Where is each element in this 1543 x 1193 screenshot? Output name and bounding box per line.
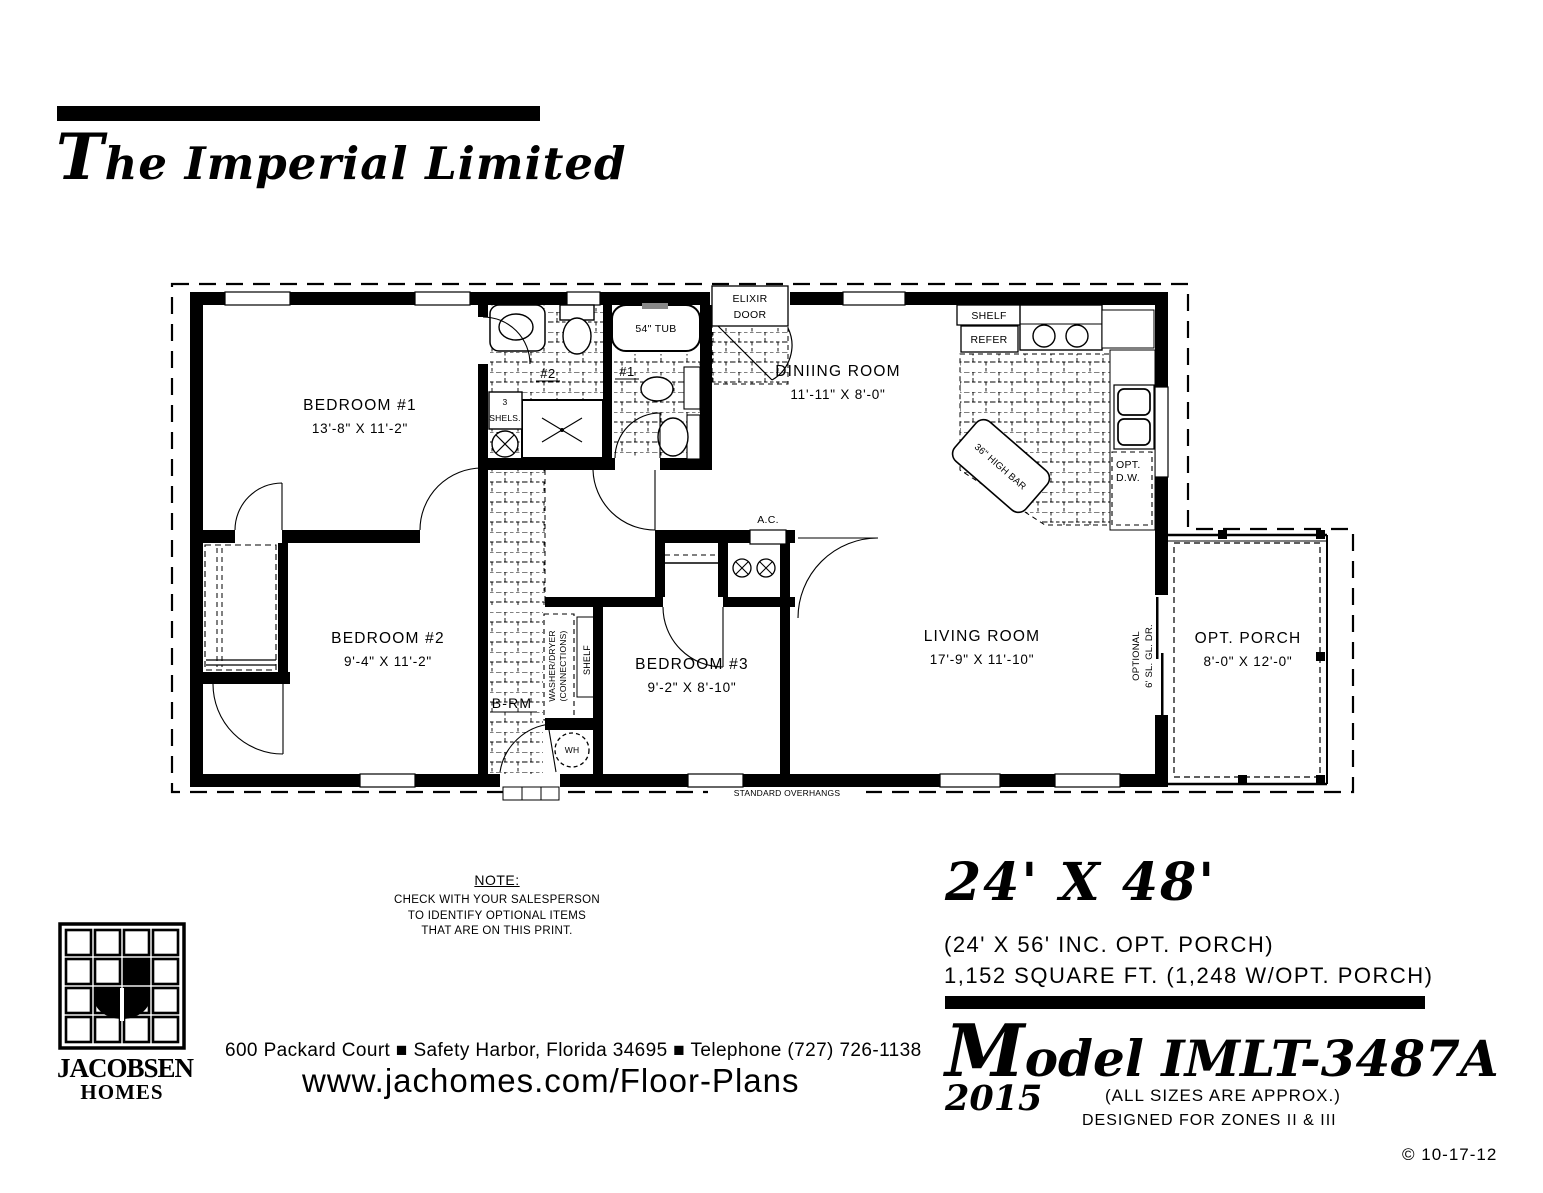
optional-label: OPTIONAL xyxy=(1131,631,1142,681)
jacobsen-logo-icon xyxy=(58,922,186,1050)
living-arch-arc xyxy=(798,538,878,618)
hall-door-arc xyxy=(420,468,482,530)
company-address: 600 Packard Court ■ Safety Harbor, Flori… xyxy=(225,1040,922,1062)
sliding-glass-door xyxy=(1156,597,1164,715)
elixir-label-2: DOOR xyxy=(734,309,767,321)
elixir-label-1: ELIXIR xyxy=(732,293,767,305)
opt-dw-label-2: D.W. xyxy=(1116,472,1140,484)
note-heading: NOTE: xyxy=(382,872,612,888)
bedroom2-name: BEDROOM #2 xyxy=(331,630,445,647)
bedroom1-closet xyxy=(205,483,282,670)
porch-name: OPT. PORCH xyxy=(1195,630,1302,647)
bath1-toilet xyxy=(658,418,688,456)
dining-dims: 11'-11" X 8'-0" xyxy=(790,387,885,402)
wh-label: WH xyxy=(565,745,580,755)
sink-basin xyxy=(1118,389,1150,415)
shels-label: SHELS. xyxy=(489,413,520,423)
note-line-2: TO IDENTIFY OPTIONAL ITEMS xyxy=(382,909,612,925)
alt-size: (24' X 56' INC. OPT. PORCH) xyxy=(944,932,1274,958)
bedroom1-dims: 13'-8" X 11'-2" xyxy=(312,421,408,436)
bath1-counter xyxy=(684,367,700,409)
ac-label: A.C. xyxy=(757,514,779,526)
sink-basin xyxy=(1118,419,1150,445)
note-block: NOTE: CHECK WITH YOUR SALESPERSON TO IDE… xyxy=(382,872,612,940)
bedroom1-name: BEDROOM #1 xyxy=(303,397,417,414)
dining-name: DINIING ROOM xyxy=(775,363,900,380)
bath1-label: #1 xyxy=(619,364,634,379)
corner-counter xyxy=(1102,310,1154,348)
bedroom3-closet xyxy=(663,555,723,667)
brm-label: B-RM xyxy=(492,695,533,711)
bath1-sink xyxy=(641,377,673,401)
tub-faucet xyxy=(642,303,668,309)
shelf-label: SHELF xyxy=(971,310,1006,322)
hall-door-arc xyxy=(593,470,655,530)
burner-icon xyxy=(1033,325,1055,347)
jacobsen-logo: JACOBSEN HOMES xyxy=(57,922,187,1103)
note-line-3: THAT ARE ON THIS PRINT. xyxy=(382,924,612,940)
porch-dims: 8'-0" X 12'-0" xyxy=(1204,654,1293,669)
sliding-glass-door-label: OPTIONAL 6' SL. GL. DR. xyxy=(1131,624,1155,688)
shelf-vert-label: SHELF xyxy=(582,645,592,675)
refer-label: REFER xyxy=(970,334,1007,346)
square-footage: 1,152 SQUARE FT. (1,248 W/OPT. PORCH) xyxy=(944,963,1434,989)
title-rule-bar xyxy=(57,106,540,121)
website-url: www.jachomes.com/Floor-Plans xyxy=(302,1062,799,1100)
bath2-toilet xyxy=(563,318,591,354)
standard-overhangs-label: STANDARD OVERHANGS xyxy=(734,788,841,798)
tub-label: 54" TUB xyxy=(635,323,676,335)
zones-note: DESIGNED FOR ZONES II & III xyxy=(1082,1112,1337,1130)
copyright-date: © 10-17-12 xyxy=(1402,1145,1497,1165)
model-year: 2015 xyxy=(945,1078,1042,1119)
shels-num-label: 3 xyxy=(503,397,508,407)
closet-door-arc xyxy=(235,483,282,530)
bath2-label: #2 xyxy=(540,366,555,381)
sizes-approx-note: (ALL SIZES ARE APPROX.) xyxy=(1105,1086,1341,1106)
stove xyxy=(1020,305,1102,350)
connections-label: (CONNECTIONS) xyxy=(558,630,568,701)
entry-step xyxy=(503,787,559,800)
opt-dw-label-1: OPT. xyxy=(1116,459,1141,471)
bedroom2-door-arc xyxy=(213,684,283,754)
living-dims: 17'-9" X 11'-10" xyxy=(930,652,1035,667)
logo-text-homes: HOMES xyxy=(57,1082,187,1103)
logo-text-jacobsen: JACOBSEN xyxy=(57,1055,187,1082)
bath1-toilet-tank xyxy=(687,415,700,459)
bath2-sink xyxy=(499,314,533,340)
burner-icon xyxy=(1066,325,1088,347)
floor-plan-drawing: STANDARD OVERHANGS xyxy=(160,272,1370,812)
note-line-1: CHECK WITH YOUR SALESPERSON xyxy=(382,893,612,909)
living-name: LIVING ROOM xyxy=(924,628,1041,645)
bedroom3-dims: 9'-2" X 8'-10" xyxy=(648,680,737,695)
bedroom3-name: BEDROOM #3 xyxy=(635,656,749,673)
sl-gl-dr-label: 6' SL. GL. DR. xyxy=(1144,624,1155,688)
floor-plan-sheet: The Imperial Limited STANDARD OVERHANGS xyxy=(0,0,1543,1193)
washer-dryer-label: WASHER/DRYER xyxy=(547,630,557,701)
size-heading: 24' X 48' xyxy=(945,852,1216,913)
page-title: The Imperial Limited xyxy=(56,120,626,195)
bedroom2-dims: 9'-4" X 11'-2" xyxy=(344,654,432,669)
